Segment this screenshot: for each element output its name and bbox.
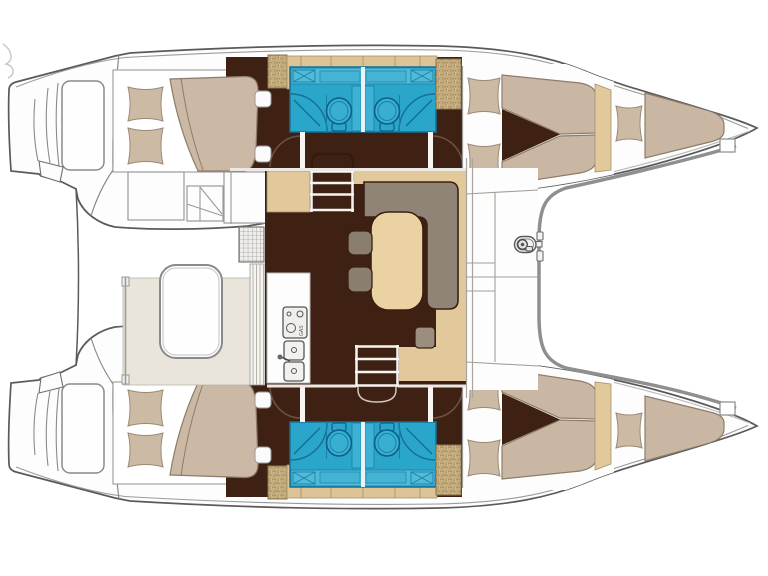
- svg-text:GAS: GAS: [299, 325, 305, 336]
